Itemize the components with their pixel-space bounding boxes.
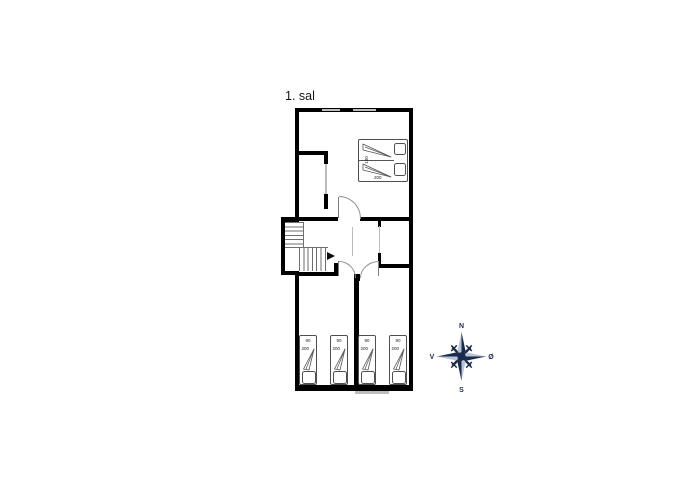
interior-window-line bbox=[379, 226, 381, 253]
pillow bbox=[302, 371, 316, 384]
wall-landing-bottom-right bbox=[378, 264, 413, 268]
pillow bbox=[333, 371, 347, 384]
double-bed: 180 200 bbox=[358, 139, 408, 182]
bed-width-label: 180 bbox=[362, 154, 372, 166]
wall-landing-top-right bbox=[360, 217, 413, 221]
door-arc-bottom-left-bedroom bbox=[339, 261, 356, 278]
window bbox=[322, 109, 340, 112]
duvet-graphic bbox=[359, 346, 377, 372]
stair-railing-line bbox=[352, 227, 354, 256]
single-bed: 90 200 bbox=[358, 335, 376, 385]
wall-closet-right-upper bbox=[324, 153, 328, 164]
outer-wall-right bbox=[409, 108, 413, 389]
bed-width-label: 90 bbox=[390, 339, 406, 344]
single-bed: 90 200 bbox=[330, 335, 348, 385]
floor-plan-canvas: 1. sal bbox=[0, 0, 700, 500]
interior-window-line bbox=[325, 164, 327, 194]
wall-closet-right-lower bbox=[324, 194, 328, 209]
pillow bbox=[394, 163, 406, 176]
bed-length-label: 200 bbox=[374, 176, 382, 181]
compass-label-north: N bbox=[459, 323, 464, 330]
duvet-graphic bbox=[300, 346, 318, 372]
single-bed: 90 200 bbox=[389, 335, 407, 385]
stair-lower-flight bbox=[299, 248, 328, 272]
bed-width-label: 90 bbox=[331, 339, 347, 344]
stair-edge-line bbox=[285, 247, 328, 248]
pillow bbox=[392, 371, 406, 384]
window bbox=[355, 391, 389, 394]
outer-wall-left-upper bbox=[295, 108, 299, 221]
stair-upper-flight bbox=[285, 222, 303, 248]
window bbox=[353, 109, 376, 112]
door-arc-top-bedroom bbox=[339, 196, 361, 219]
bed-width-label: 90 bbox=[300, 339, 316, 344]
stair-edge-line bbox=[303, 222, 304, 248]
compass-label-east: Ø bbox=[488, 354, 494, 361]
compass-rose: N Ø S V bbox=[427, 318, 497, 396]
wall-landing-top-left bbox=[295, 217, 338, 221]
single-bed: 90 200 bbox=[299, 335, 317, 385]
pillow bbox=[361, 371, 375, 384]
wall-landing-right-upper bbox=[378, 217, 382, 227]
stair-direction-arrow bbox=[327, 252, 335, 260]
compass-label-south: S bbox=[459, 387, 464, 394]
compass-center-dot bbox=[457, 352, 465, 360]
duvet-graphic bbox=[331, 346, 349, 372]
duvet-graphic bbox=[390, 346, 408, 372]
bed-width-label: 90 bbox=[359, 339, 375, 344]
compass-label-west: V bbox=[430, 354, 435, 361]
wall-landing-bottom-left bbox=[295, 272, 338, 276]
door-arc-bottom-right-bedroom bbox=[360, 261, 379, 278]
pillow bbox=[394, 143, 406, 156]
page-title: 1. sal bbox=[285, 89, 315, 103]
